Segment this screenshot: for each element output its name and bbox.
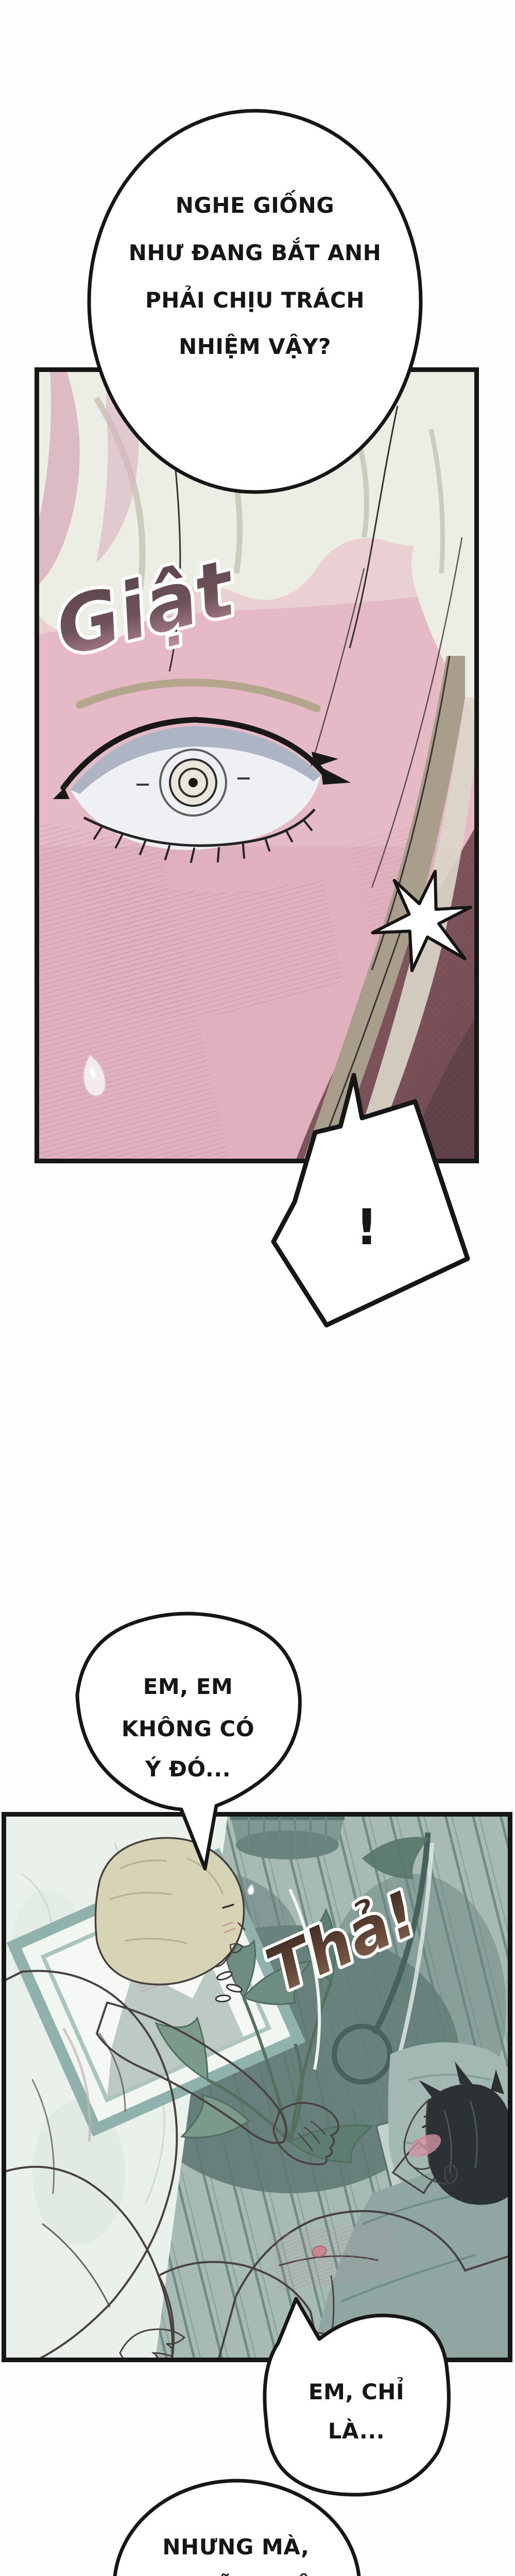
bubble-hesitation-line1: EM, CHỈ — [308, 2377, 404, 2404]
bubble-question-line2: NHƯ ĐANG BẮT ANH — [129, 236, 382, 265]
pendant-lamp — [230, 1812, 345, 1859]
panel-2-artwork: Thả! — [2, 1812, 512, 2362]
bubble-question-line4: NHIỆM VẬY? — [179, 333, 331, 359]
bubble-apology-line1: EM, EM — [143, 1674, 233, 1699]
bubble-apology-line3: Ý ĐÓ... — [145, 1756, 231, 1782]
bubble-reply-line1: NHƯNG MÀ, — [162, 2534, 309, 2560]
speech-bubble-hesitation: EM, CHỈ LÀ... — [265, 2299, 449, 2495]
panel-2: Thả! — [2, 1812, 512, 2362]
page-canvas: Giật NGHE GIỐNG NHƯ ĐANG BẮT ANH PHẢI CH… — [0, 0, 515, 2576]
bubble-question-line1: NGHE GIỐNG — [176, 189, 335, 218]
bubble-apology-line2: KHÔNG CÓ — [122, 1716, 254, 1741]
comic-page: Giật NGHE GIỐNG NHƯ ĐANG BẮT ANH PHẢI CH… — [0, 0, 515, 2576]
bubble-reply-line2: ANH CŨNG VẬY. — [139, 2573, 333, 2576]
bubble-question-line3: PHẢI CHỊU TRÁCH — [145, 285, 365, 313]
exclamation-text: ! — [355, 1199, 377, 1256]
bubble-hesitation-line2: LÀ... — [328, 2418, 385, 2444]
speech-bubble-question: NGHE GIỐNG NHƯ ĐANG BẮT ANH PHẢI CHỊU TR… — [89, 111, 421, 492]
blonde-hair — [95, 1838, 244, 1985]
